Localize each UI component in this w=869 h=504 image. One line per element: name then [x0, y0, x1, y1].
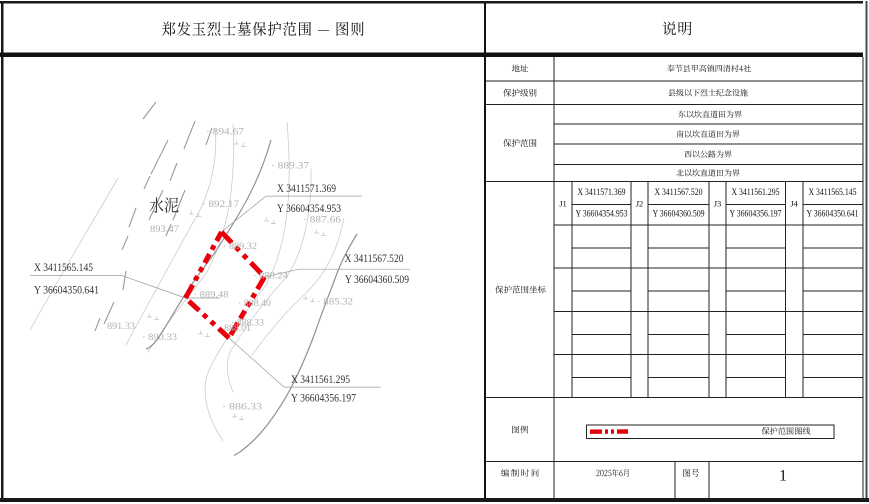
svg-text:· 888.40: · 888.40	[238, 298, 271, 308]
svg-text:X 3411565.145: X 3411565.145	[34, 260, 93, 274]
svg-text:Y 36604356.197: Y 36604356.197	[291, 391, 356, 405]
svg-text:Y 36604356.197: Y 36604356.197	[730, 209, 782, 219]
svg-text:Y 36604360.509: Y 36604360.509	[345, 272, 409, 286]
svg-text:1: 1	[779, 468, 787, 485]
svg-text:· 885.32: · 885.32	[317, 297, 353, 307]
svg-text:X 3411571.369: X 3411571.369	[578, 187, 626, 197]
svg-text:Y 36604360.509: Y 36604360.509	[653, 209, 705, 219]
svg-text:888.01: 888.01	[224, 323, 251, 333]
svg-text:Y 36604350.641: Y 36604350.641	[807, 209, 859, 219]
svg-text:X 3411571.369: X 3411571.369	[277, 181, 336, 195]
svg-text:Y 36604354.953: Y 36604354.953	[576, 209, 628, 219]
svg-text:· 889.48: · 889.48	[194, 290, 229, 300]
svg-text:J1: J1	[559, 198, 567, 208]
svg-text:Y 36604350.641: Y 36604350.641	[34, 283, 99, 297]
svg-text:· 888.24: · 888.24	[253, 271, 288, 281]
svg-text:J3: J3	[714, 198, 722, 208]
svg-text:· 890.33: · 890.33	[142, 332, 177, 342]
svg-text:J2: J2	[636, 198, 644, 208]
svg-text:· 892.17: · 892.17	[202, 199, 239, 209]
svg-text:X 3411561.295: X 3411561.295	[291, 372, 350, 386]
svg-text:X 3411567.520: X 3411567.520	[345, 251, 404, 265]
svg-text:· 887.66: · 887.66	[303, 215, 342, 225]
svg-text:· 894.67: · 894.67	[206, 127, 245, 137]
svg-text:J4: J4	[790, 198, 798, 208]
svg-text:· 886.33: · 886.33	[222, 402, 263, 412]
svg-text:X 3411561.295: X 3411561.295	[732, 187, 780, 197]
svg-text:X 3411565.145: X 3411565.145	[809, 187, 857, 197]
svg-text:893.47: 893.47	[150, 224, 179, 234]
svg-text:· 889.32: · 889.32	[223, 241, 257, 251]
svg-text:Y 36604354.953: Y 36604354.953	[277, 201, 341, 215]
svg-text:X 3411567.520: X 3411567.520	[655, 187, 703, 197]
svg-text:891.33: 891.33	[107, 321, 135, 331]
svg-text:· 889.37: · 889.37	[271, 161, 310, 171]
